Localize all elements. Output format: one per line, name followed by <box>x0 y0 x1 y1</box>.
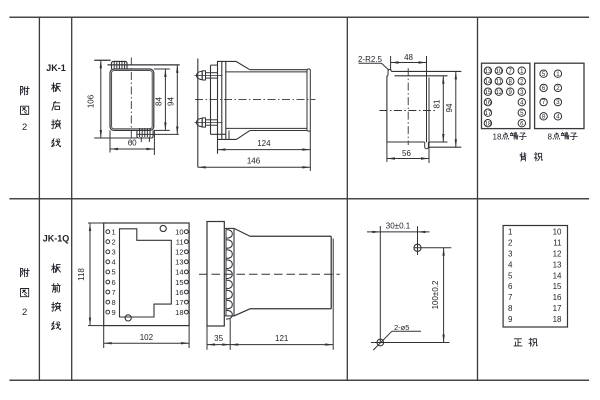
svg-text:3: 3 <box>112 248 116 257</box>
svg-text:7: 7 <box>112 288 116 297</box>
svg-text:11: 11 <box>553 239 562 248</box>
svg-text:15: 15 <box>553 282 562 291</box>
svg-text:2-R2.5: 2-R2.5 <box>358 55 383 64</box>
svg-text:18: 18 <box>175 308 183 317</box>
svg-text:118: 118 <box>77 268 86 281</box>
svg-text:4: 4 <box>508 260 513 269</box>
svg-text:100±0.2: 100±0.2 <box>431 280 440 309</box>
svg-text:2: 2 <box>112 238 116 247</box>
svg-text:11: 11 <box>496 79 503 85</box>
svg-text:18: 18 <box>553 315 562 324</box>
svg-text:146: 146 <box>247 157 261 166</box>
svg-text:30±0.1: 30±0.1 <box>386 222 411 231</box>
svg-text:13: 13 <box>485 69 492 75</box>
svg-text:18: 18 <box>493 132 502 141</box>
svg-text:2: 2 <box>22 307 27 318</box>
svg-text:15: 15 <box>175 278 183 287</box>
svg-text:9: 9 <box>508 315 513 324</box>
svg-text:12: 12 <box>175 248 183 257</box>
svg-text:13: 13 <box>175 258 183 267</box>
svg-text:56: 56 <box>402 149 411 158</box>
svg-text:12: 12 <box>495 90 502 96</box>
svg-text:5: 5 <box>112 268 116 277</box>
svg-text:14: 14 <box>553 271 562 280</box>
svg-text:84: 84 <box>155 97 164 106</box>
svg-text:5: 5 <box>508 271 513 280</box>
svg-text:8: 8 <box>508 304 513 313</box>
svg-text:14: 14 <box>485 79 492 85</box>
svg-text:124: 124 <box>257 139 271 148</box>
svg-text:102: 102 <box>140 333 154 342</box>
svg-text:94: 94 <box>167 97 176 106</box>
svg-text:JK-1: JK-1 <box>46 63 66 73</box>
svg-text:11: 11 <box>176 238 184 247</box>
svg-text:16: 16 <box>553 293 562 302</box>
svg-text:3: 3 <box>508 249 513 258</box>
svg-text:8: 8 <box>112 298 116 307</box>
svg-text:48: 48 <box>404 53 413 62</box>
svg-text:10: 10 <box>495 69 502 75</box>
svg-text:6: 6 <box>112 278 116 287</box>
svg-text:121: 121 <box>275 334 289 343</box>
svg-text:17: 17 <box>553 304 562 313</box>
svg-text:13: 13 <box>553 260 562 269</box>
svg-text:8: 8 <box>548 132 553 141</box>
svg-text:1: 1 <box>508 228 513 237</box>
svg-text:60: 60 <box>128 139 137 148</box>
svg-text:106: 106 <box>86 94 95 108</box>
svg-text:81: 81 <box>433 99 442 108</box>
svg-text:94: 94 <box>445 103 454 112</box>
svg-text:10: 10 <box>553 228 562 237</box>
svg-text:JK-1Q: JK-1Q <box>43 234 70 244</box>
svg-text:17: 17 <box>485 111 492 117</box>
svg-text:2-ø5: 2-ø5 <box>394 323 409 332</box>
svg-text:16: 16 <box>485 100 492 106</box>
svg-text:17: 17 <box>175 298 183 307</box>
svg-text:6: 6 <box>508 282 513 291</box>
svg-text:18: 18 <box>485 121 492 127</box>
svg-text:7: 7 <box>508 293 513 302</box>
svg-text:16: 16 <box>175 288 183 297</box>
svg-text:1: 1 <box>112 228 116 237</box>
svg-text:35: 35 <box>214 334 223 343</box>
svg-text:15: 15 <box>485 90 492 96</box>
svg-text:14: 14 <box>175 268 183 277</box>
svg-text:10: 10 <box>175 228 183 237</box>
svg-text:2: 2 <box>22 122 27 133</box>
svg-text:2: 2 <box>508 239 513 248</box>
svg-text:9: 9 <box>112 308 116 317</box>
svg-text:4: 4 <box>112 258 116 267</box>
svg-text:12: 12 <box>553 249 562 258</box>
